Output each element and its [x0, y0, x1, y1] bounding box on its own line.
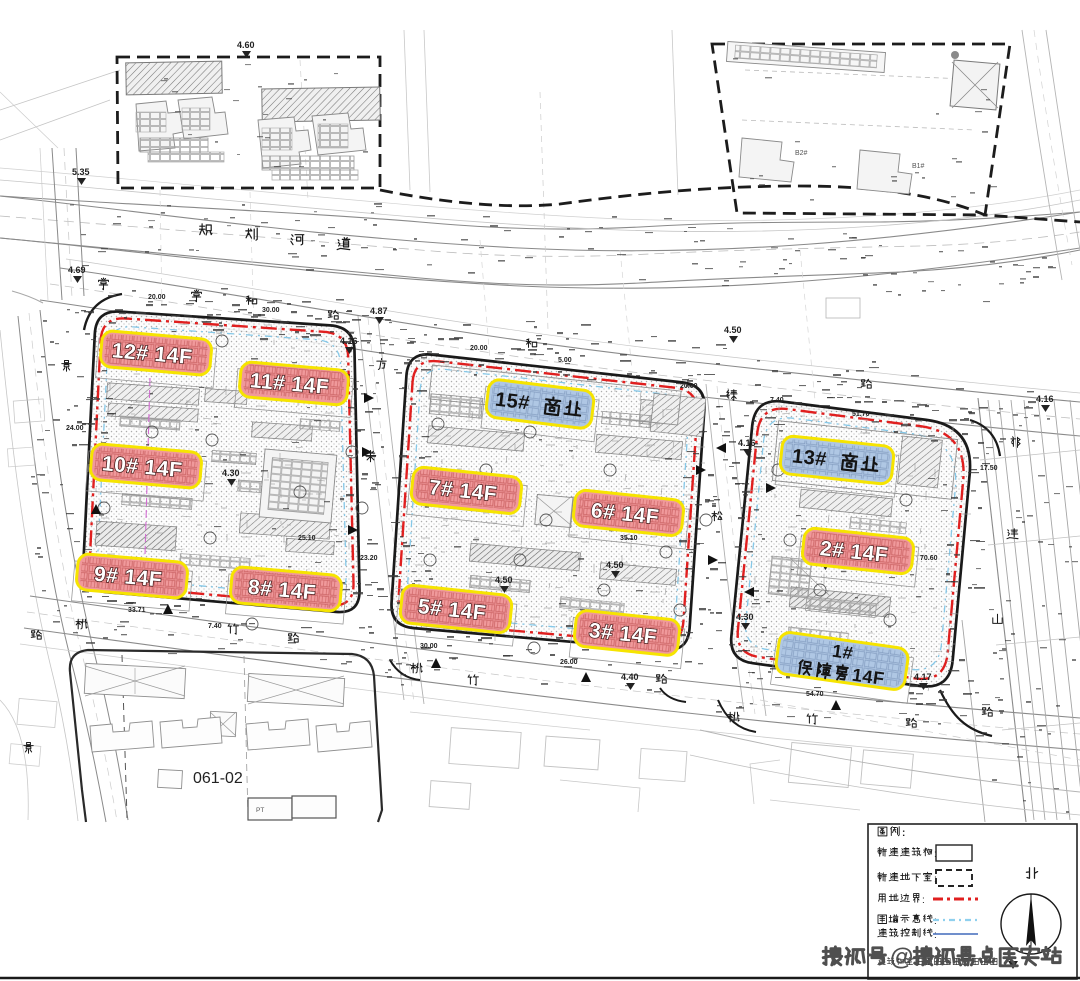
svg-text:26.00: 26.00: [560, 659, 578, 666]
svg-text:4.16: 4.16: [1036, 394, 1054, 404]
svg-text:1#: 1#: [831, 641, 855, 664]
svg-text:23.20: 23.20: [360, 555, 378, 562]
svg-text::: :: [934, 930, 937, 941]
svg-text:4.87: 4.87: [370, 306, 388, 316]
svg-text:061-02: 061-02: [193, 770, 243, 787]
svg-text:54.70: 54.70: [806, 691, 824, 698]
svg-text::: :: [934, 916, 937, 927]
svg-text::: :: [922, 895, 925, 906]
svg-text:20.00: 20.00: [680, 383, 698, 390]
svg-text:13#: 13#: [791, 445, 828, 471]
svg-text:4.50: 4.50: [724, 325, 742, 335]
svg-text:4.30: 4.30: [736, 612, 754, 622]
svg-text:25.10: 25.10: [298, 535, 316, 542]
svg-text:33.71: 33.71: [128, 607, 146, 614]
svg-text:30.00: 30.00: [420, 643, 438, 650]
svg-text:7.40: 7.40: [208, 623, 222, 630]
svg-text:PT: PT: [256, 807, 264, 814]
svg-text:70.60: 70.60: [920, 555, 938, 562]
svg-text:4.30: 4.30: [222, 468, 240, 478]
svg-text:20.00: 20.00: [148, 294, 166, 301]
svg-text:B2#: B2#: [795, 150, 808, 157]
svg-text:15#: 15#: [494, 389, 531, 415]
svg-text:4.40: 4.40: [621, 672, 639, 682]
svg-text:35.10: 35.10: [620, 535, 638, 542]
svg-text:@: @: [890, 944, 913, 971]
svg-text::: :: [902, 828, 905, 839]
svg-text:4.50: 4.50: [606, 560, 624, 570]
svg-text:4.16: 4.16: [340, 336, 358, 346]
svg-text:30.00: 30.00: [262, 307, 280, 314]
svg-text:4.69: 4.69: [68, 265, 86, 275]
svg-text:7.40: 7.40: [770, 397, 784, 404]
svg-text:4.60: 4.60: [237, 40, 255, 50]
svg-text:51.70: 51.70: [852, 411, 870, 418]
svg-text:24.00: 24.00: [66, 425, 84, 432]
svg-text:4.17: 4.17: [914, 672, 932, 682]
svg-text:5.00: 5.00: [558, 357, 572, 364]
svg-text:4.16: 4.16: [738, 438, 756, 448]
svg-text:B1#: B1#: [912, 163, 925, 170]
svg-text:5.35: 5.35: [72, 167, 90, 177]
svg-text:4.50: 4.50: [495, 575, 513, 585]
svg-text:17.50: 17.50: [980, 465, 998, 472]
svg-text:20.00: 20.00: [470, 345, 488, 352]
